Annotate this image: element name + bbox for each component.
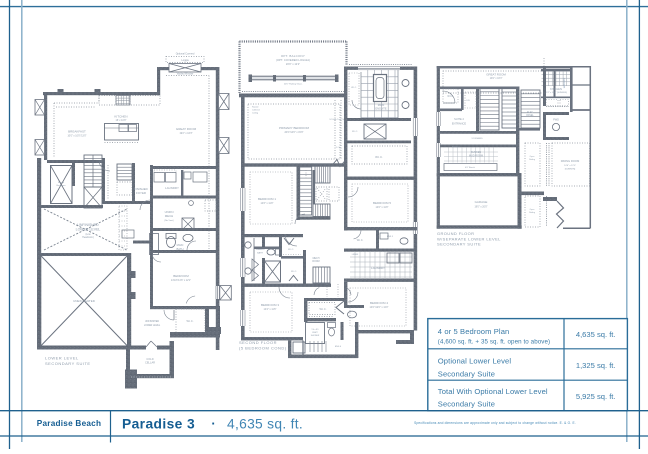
svg-text:(OPT. COVERED LOGGIA): (OPT. COVERED LOGGIA)	[276, 58, 310, 62]
svg-text:14'0"/12'0" x 11'0": 14'0"/12'0" x 11'0"	[370, 306, 389, 309]
svg-text:SERVERY: SERVERY	[564, 77, 566, 88]
svg-text:W.I.C.: W.I.C.	[319, 307, 326, 311]
svg-text:14'2" x 11'6": 14'2" x 11'6"	[264, 308, 277, 311]
svg-text:(Low: (Low	[86, 234, 91, 236]
svg-text:4,635 sq. ft.: 4,635 sq. ft.	[227, 417, 303, 432]
svg-text:(SUNKEN): (SUNKEN)	[565, 168, 576, 170]
svg-text:BEDROOM: BEDROOM	[173, 274, 189, 278]
svg-text:Open: Open	[530, 209, 535, 211]
svg-text:4,635 sq. ft.: 4,635 sq. ft.	[576, 330, 616, 339]
svg-text:Railing: Railing	[529, 159, 535, 161]
svg-text:Paradise 3: Paradise 3	[122, 417, 195, 432]
svg-text:Paradise Beach: Paradise Beach	[37, 419, 102, 428]
svg-text:BATH: BATH	[257, 252, 263, 255]
svg-text:19'2" x 16'3": 19'2" x 16'3"	[490, 78, 503, 80]
svg-text:10'0" x 10'0"/13'0": 10'0" x 10'0"/13'0"	[67, 135, 86, 138]
svg-text:Future: Future	[58, 181, 65, 184]
svg-text:SECONDARY SUITE: SECONDARY SUITE	[45, 361, 91, 366]
svg-text:ENTRANCE: ENTRANCE	[452, 122, 467, 126]
svg-text:20'0"/14'6" x 15'0": 20'0"/14'6" x 15'0"	[284, 131, 303, 134]
svg-text:GREAT ROOM: GREAT ROOM	[176, 127, 197, 131]
svg-text:14'10"/11'6" x 12'1": 14'10"/11'6" x 12'1"	[171, 279, 191, 282]
svg-text:DN: DN	[466, 100, 470, 102]
svg-text:W.I.C.: W.I.C.	[375, 155, 383, 159]
svg-text:LOWER LEVEL: LOWER LEVEL	[76, 228, 101, 232]
svg-text:DINING ROOM: DINING ROOM	[561, 159, 580, 163]
svg-text:LAUNDRY: LAUNDRY	[371, 266, 385, 270]
svg-text:Open: Open	[530, 156, 535, 158]
svg-text:Coffered: Coffered	[252, 110, 260, 112]
svg-text:(4,600 sq. ft. + 35 sq. ft. op: (4,600 sq. ft. + 35 sq. ft. open to abov…	[438, 338, 550, 345]
svg-text:Raised: Raised	[252, 107, 258, 109]
svg-text:FOYER: FOYER	[136, 191, 146, 195]
svg-text:9' Clg: 9' Clg	[336, 147, 341, 149]
svg-text:LINEN: LINEN	[352, 254, 359, 256]
svg-text:12 RISERS: 12 RISERS	[471, 138, 483, 140]
svg-text:Headroom): Headroom)	[82, 236, 94, 239]
svg-text:BEDROOM 5: BEDROOM 5	[373, 201, 391, 205]
svg-text:4 or 5 Bedroom Plan: 4 or 5 Bedroom Plan	[438, 327, 510, 336]
svg-text:W.I.C.: W.I.C.	[186, 319, 193, 323]
svg-text:KITCHEN: KITCHEN	[550, 87, 562, 91]
svg-text:19'2" x 16'3": 19'2" x 16'3"	[179, 132, 192, 135]
svg-text:BEDROOM 1: BEDROOM 1	[258, 197, 276, 201]
svg-text:Ceiling: Ceiling	[252, 113, 258, 115]
svg-text:GARAGE: GARAGE	[475, 200, 488, 204]
svg-text:ROOM: ROOM	[312, 261, 319, 263]
svg-text:ENSUITE: ENSUITE	[375, 107, 387, 111]
svg-text:W.I.C.: W.I.C.	[288, 249, 294, 251]
svg-text:W/SEPARATE LOWER LEVEL: W/SEPARATE LOWER LEVEL	[437, 236, 501, 241]
svg-text:(No Vent): (No Vent)	[164, 219, 174, 222]
svg-text:ENS 4: ENS 4	[335, 346, 342, 348]
svg-text:5,925 sq. ft.: 5,925 sq. ft.	[576, 392, 616, 401]
svg-text:MAIN: MAIN	[378, 103, 385, 107]
svg-text:Secondary Suite: Secondary Suite	[438, 369, 495, 378]
svg-text:KITCHEN: KITCHEN	[114, 115, 127, 119]
svg-text:Secondary Suite: Secondary Suite	[438, 400, 495, 409]
svg-text:20'0" Railing Glass: 20'0" Railing Glass	[284, 84, 303, 86]
svg-text:UNFINISHED: UNFINISHED	[145, 321, 159, 323]
svg-text:PWD: PWD	[553, 119, 559, 122]
svg-text:19'0" x 20'0": 19'0" x 20'0"	[474, 205, 487, 208]
svg-text:1,325 sq. ft.: 1,325 sq. ft.	[576, 361, 616, 370]
svg-text:UNEXCAVATED: UNEXCAVATED	[73, 299, 96, 303]
svg-text:Optional Covered: Optional Covered	[176, 53, 195, 56]
svg-text:W.I.C.: W.I.C.	[351, 87, 357, 89]
svg-text:5'0 x 8'0: 5'0 x 8'0	[312, 329, 319, 331]
svg-text:BSMT: BSMT	[312, 332, 318, 334]
svg-text:Vaulted Window: Vaulted Window	[177, 73, 194, 76]
svg-text:MAIN: MAIN	[177, 243, 184, 247]
svg-text:LOWER LEVEL: LOWER LEVEL	[144, 325, 161, 327]
svg-text:LOWER LEVEL: LOWER LEVEL	[45, 356, 79, 361]
svg-text:W.I.C.: W.I.C.	[291, 271, 297, 273]
svg-text:ELEC: ELEC	[527, 112, 533, 114]
svg-text:GROUND FLOOR: GROUND FLOOR	[437, 231, 474, 236]
svg-text:SECOND FLOOR: SECOND FLOOR	[239, 340, 277, 345]
svg-text:19'2" x 10'0" (SUNKEN): 19'2" x 10'0" (SUNKEN)	[545, 92, 567, 94]
svg-text:BREAKFAST: BREAKFAST	[68, 130, 86, 134]
svg-text:UNFINISHED: UNFINISHED	[77, 223, 99, 227]
svg-text:PRIMARY BEDROOM: PRIMARY BEDROOM	[279, 126, 309, 130]
svg-text:MUD ROOM: MUD ROOM	[469, 155, 483, 158]
svg-text:SHOWER: SHOWER	[311, 335, 320, 337]
svg-text:14'6" x 11'0": 14'6" x 11'0"	[261, 202, 274, 205]
svg-text:GREAT ROOM: GREAT ROOM	[486, 73, 506, 77]
svg-text:4'0" Bench: 4'0" Bench	[465, 167, 476, 169]
svg-text:BEDROOM 4: BEDROOM 4	[370, 301, 388, 305]
svg-text:PANEL: PANEL	[526, 114, 534, 117]
svg-text:Total With Optional Lower Leve: Total With Optional Lower Level	[438, 387, 548, 396]
svg-text:Roll Door: Roll Door	[452, 146, 460, 149]
svg-text:W.I.C.: W.I.C.	[352, 131, 358, 133]
svg-text:COLD: COLD	[146, 357, 153, 361]
svg-text:MECH: MECH	[165, 214, 174, 218]
svg-text:Specifications and dimensions: Specifications and dimensions are approx…	[414, 421, 576, 425]
svg-text:Optional Lower Level: Optional Lower Level	[438, 357, 512, 366]
svg-text:W.I.C.: W.I.C.	[357, 239, 364, 242]
svg-text:14'0" x 11'0": 14'0" x 11'0"	[376, 206, 389, 209]
svg-text:BEDROOM 3: BEDROOM 3	[261, 303, 279, 307]
svg-text:Loggia: Loggia	[181, 59, 189, 62]
svg-text:10' High Tray Clg: 10' High Tray Clg	[329, 119, 344, 121]
svg-text:Railing: Railing	[529, 212, 535, 214]
svg-text:LAUNDRY: LAUNDRY	[165, 186, 179, 190]
svg-text:SECONDARY SUITE: SECONDARY SUITE	[437, 242, 481, 247]
svg-text:Bedroom: Bedroom	[57, 184, 66, 187]
svg-text:·: ·	[211, 416, 215, 431]
svg-text:20'0" x 12'2": 20'0" x 12'2"	[286, 62, 300, 66]
svg-text:16' x 10'0": 16' x 10'0"	[116, 119, 127, 122]
svg-text:CELLAR: CELLAR	[145, 361, 155, 365]
svg-text:MECH: MECH	[313, 258, 320, 260]
svg-text:SUITE 2: SUITE 2	[454, 117, 464, 121]
svg-text:(5 BEDROOM COND): (5 BEDROOM COND)	[239, 346, 287, 351]
svg-text:14'6" x 12'0": 14'6" x 12'0"	[564, 165, 576, 167]
